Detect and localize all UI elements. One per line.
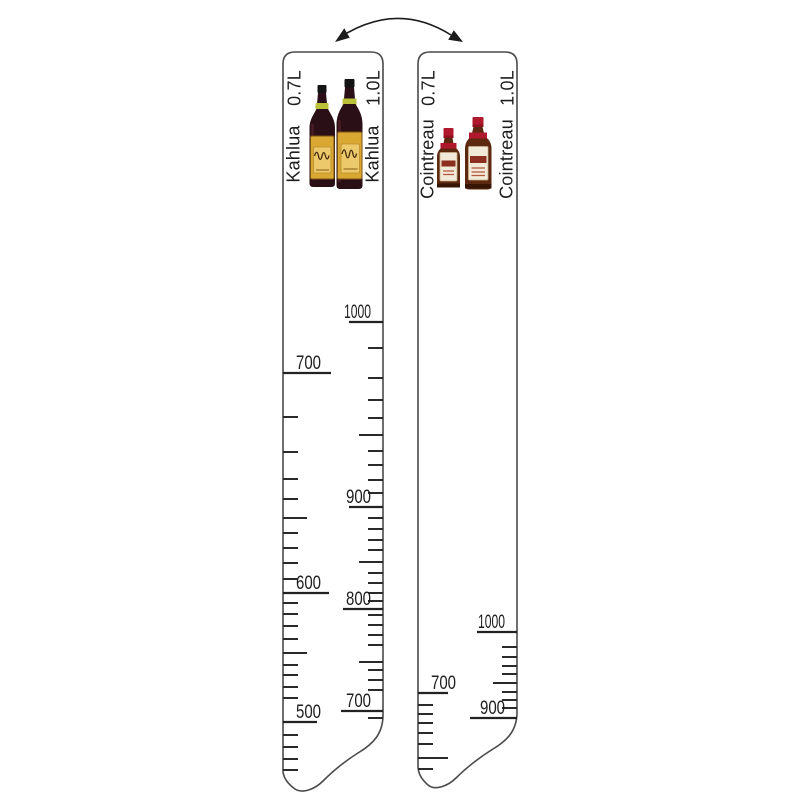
cointreau-left-size-label: 0.7L	[419, 70, 440, 106]
scale-value-label: 900	[346, 487, 371, 508]
scale-value-label: 700	[431, 673, 456, 694]
scale-value-label: 600	[296, 573, 321, 594]
cointreau-right-brand-label: Cointreau	[497, 119, 518, 199]
bar-ruler-product-image: 7006005001000900800700 7001000900 0.7L K…	[0, 0, 800, 800]
scale-value-label: 800	[346, 589, 371, 610]
cointreau-right-size-label: 1.0L	[498, 70, 519, 106]
kahlua-right-brand-label: Kahlua	[363, 125, 384, 182]
cointreau-left-brand-label: Cointreau	[418, 119, 439, 199]
kahlua-left-brand-label: Kahlua	[284, 125, 305, 182]
flip-arrow-icon	[335, 18, 463, 42]
scale-value-label: 1000	[478, 612, 505, 633]
scale-value-label: 500	[296, 702, 321, 723]
kahlua-right-size-label: 1.0L	[364, 70, 385, 106]
kahlua-left-size-label: 0.7L	[285, 70, 306, 106]
scale-value-label: 700	[296, 353, 321, 374]
scale-value-label: 700	[346, 691, 371, 712]
scale-value-label: 900	[480, 698, 505, 719]
scene-graphic: 7006005001000900800700 7001000900	[0, 0, 800, 800]
scale-value-label: 1000	[344, 302, 371, 323]
